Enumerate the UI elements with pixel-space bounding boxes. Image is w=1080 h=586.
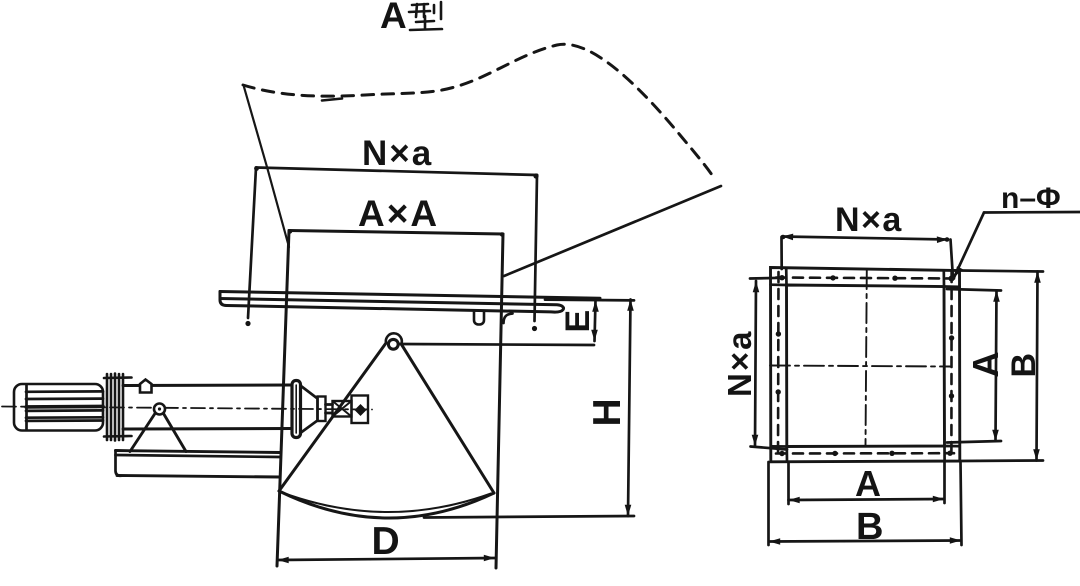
svg-text:E: E [559, 310, 597, 333]
svg-text:B: B [1005, 353, 1043, 378]
svg-text:n–Φ: n–Φ [1001, 182, 1061, 215]
svg-text:N×a: N×a [835, 201, 903, 239]
svg-text:A: A [855, 463, 881, 504]
svg-text:N×a: N×a [721, 330, 758, 397]
svg-text:N×a: N×a [362, 134, 433, 173]
svg-text:A×A: A×A [358, 193, 439, 234]
svg-text:D: D [372, 520, 400, 563]
svg-text:A: A [965, 352, 1006, 378]
svg-text:H: H [586, 398, 629, 426]
svg-text:A: A [380, 0, 407, 36]
svg-text:B: B [856, 506, 883, 548]
